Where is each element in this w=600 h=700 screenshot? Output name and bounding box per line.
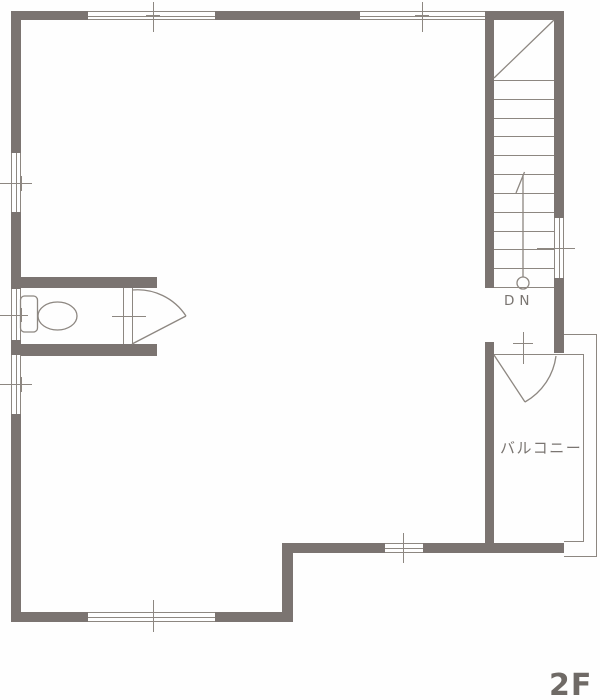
tick-wc-door	[112, 316, 146, 317]
outer-wall-step	[282, 553, 293, 612]
floor-plan: DN バルコニー 2F	[0, 0, 600, 700]
balcony-door-leaf	[494, 355, 525, 402]
wc-door-frame-1	[123, 288, 124, 344]
stair-tread	[494, 212, 554, 213]
window-top-1	[88, 11, 215, 20]
tick-window-lower-right-dash	[396, 548, 410, 549]
balcony-rail-outer-right	[596, 334, 597, 557]
tick-window-stairs-right	[537, 248, 575, 249]
tick-window-left-3-dash	[21, 377, 22, 392]
stair-tread	[494, 249, 554, 250]
tick-window-top-2	[422, 2, 423, 32]
tick-window-top-1	[153, 2, 154, 32]
wc-door-swing-arc	[132, 290, 186, 316]
balcony-door-swing-arc	[525, 356, 556, 402]
stair-tread	[494, 80, 554, 81]
balcony-rail-inner-right	[583, 354, 584, 542]
tick-window-top-2-dash	[415, 15, 429, 16]
stair-tread	[494, 118, 554, 119]
tick-balcony-door	[523, 332, 524, 364]
stairs-direction-slash	[516, 172, 525, 193]
stair-tread	[494, 193, 554, 194]
balcony-left-wall	[485, 342, 494, 553]
balcony-rail-outer-top	[564, 334, 596, 335]
tick-window-left-3	[0, 384, 32, 385]
wc-door-frame-2	[132, 288, 133, 344]
wc-wall-bottom	[18, 344, 157, 356]
balcony-rail-outer-bottom	[564, 556, 597, 557]
tick-window-top-1-dash	[146, 15, 160, 16]
toilet-bowl	[38, 302, 77, 330]
stair-tread	[494, 231, 554, 232]
outer-wall-lower-right	[282, 543, 564, 553]
stair-tread	[494, 155, 554, 156]
stair-tread	[494, 174, 554, 175]
outer-wall-right	[554, 11, 564, 353]
tick-window-left-1-dash	[21, 176, 22, 191]
stair-tread	[494, 287, 554, 288]
wc-door-leaf	[132, 316, 186, 344]
stairs-down-label: DN	[504, 293, 535, 309]
balcony-label: バルコニー	[500, 437, 582, 458]
floor-label: 2F	[549, 668, 592, 700]
toilet-tank	[21, 296, 38, 332]
balcony-door-header	[494, 354, 583, 355]
tick-window-bottom-dash	[146, 617, 160, 618]
stair-tread	[494, 268, 554, 269]
tick-balcony-door-dash	[513, 343, 533, 344]
balcony-rail-inner-bottom	[564, 541, 583, 542]
stair-tread	[494, 136, 554, 137]
stairs-break-diagonal	[494, 20, 554, 78]
tick-window-left-1	[0, 183, 32, 184]
tick-window-left-wc	[0, 315, 28, 316]
stairwell-left-wall	[485, 20, 494, 288]
wc-wall-top	[18, 277, 157, 288]
stair-tread	[494, 99, 554, 100]
tick-window-left-wc-dash	[21, 308, 22, 322]
